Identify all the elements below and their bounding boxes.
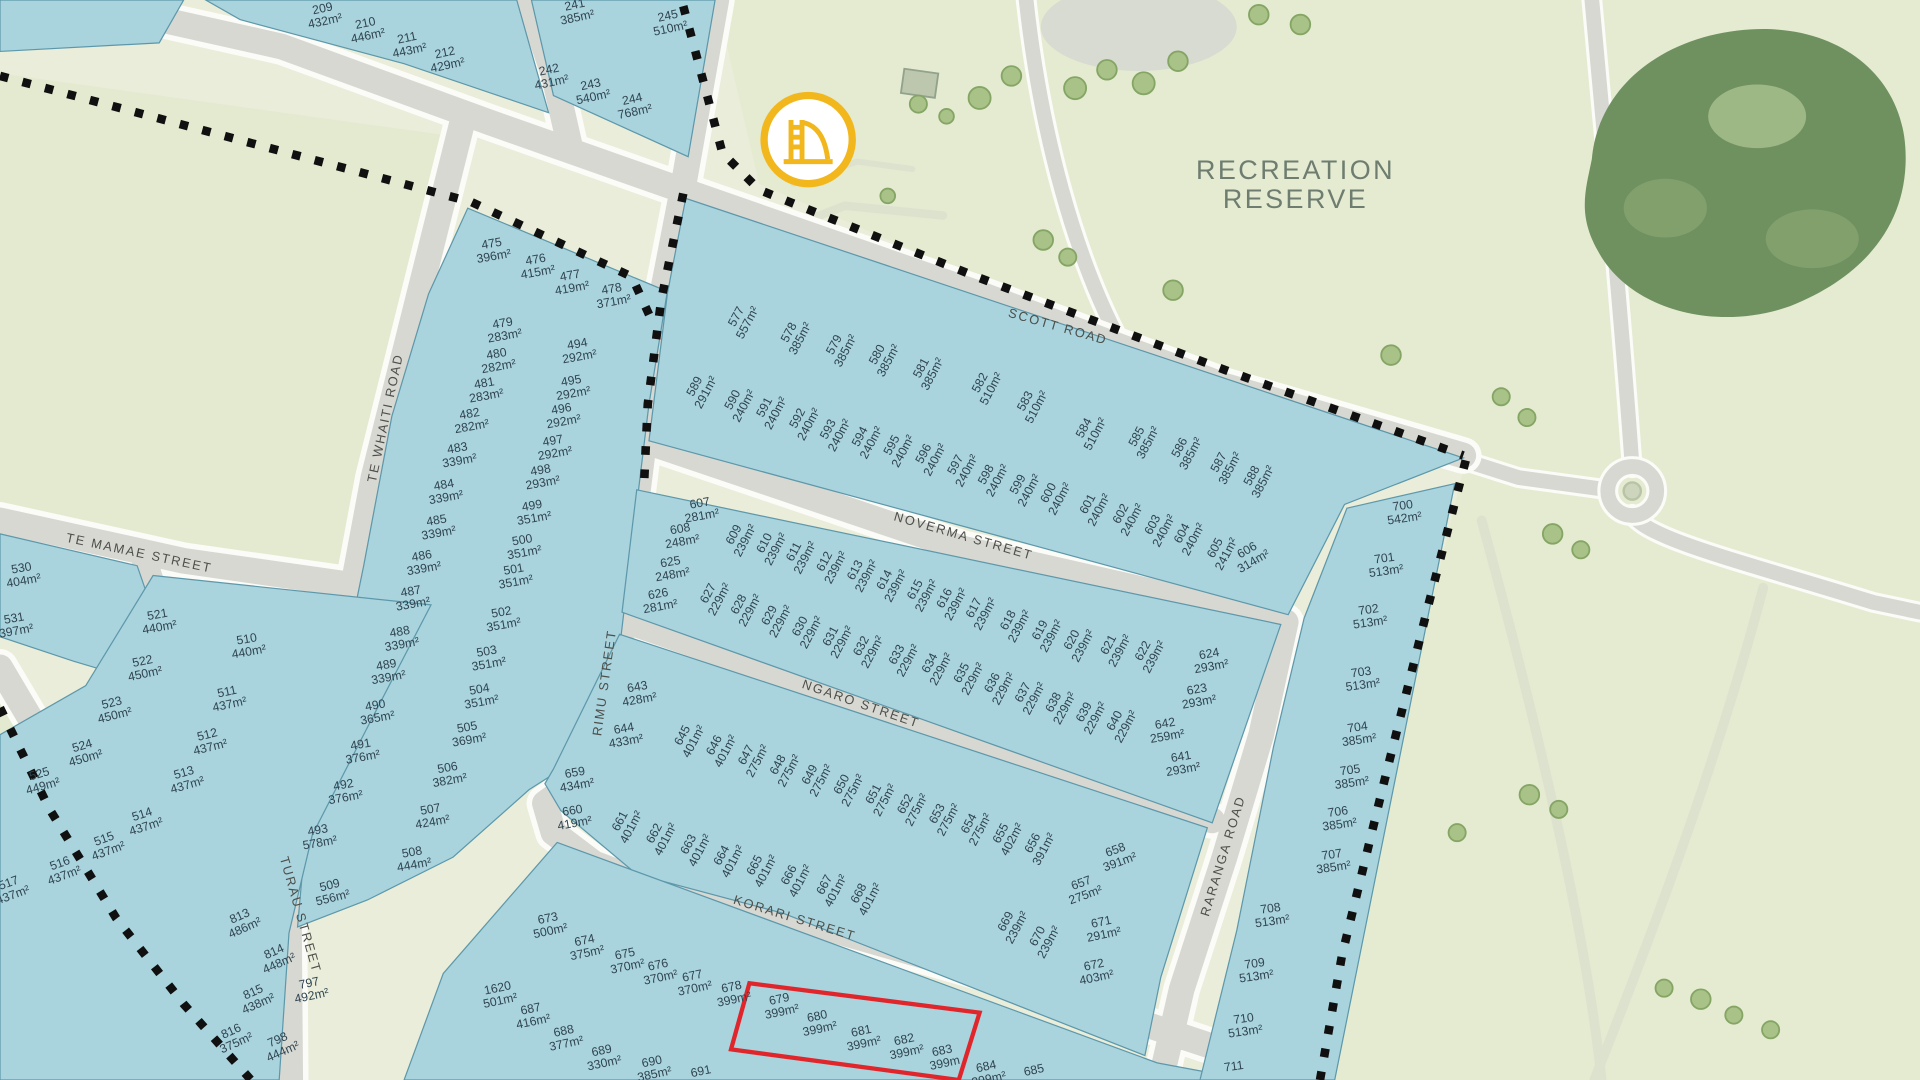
region-label: RECREATION	[1196, 155, 1395, 185]
lot-label: 711	[1223, 1058, 1244, 1075]
playground-icon[interactable]	[764, 96, 852, 184]
region-label: RESERVE	[1223, 184, 1368, 214]
subdivision-map: 209432m²210446m²211443m²212429m²241385m²…	[0, 0, 1920, 1080]
